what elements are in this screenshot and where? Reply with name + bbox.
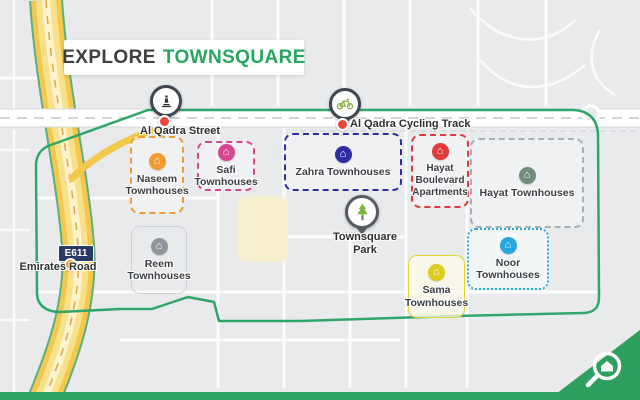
region-sama-townhouses: ⌂ Sama Townhouses <box>408 255 465 318</box>
home-icon: ⌂ <box>218 144 235 161</box>
region-label: Noor Townhouses <box>469 257 547 282</box>
region-hayat-boulevard-apartments: ⌂ Hayat Boulevard Apartments <box>411 134 469 208</box>
home-icon: ⌂ <box>335 146 352 163</box>
region-label: Safi Townhouses <box>194 164 257 189</box>
landmark-building <box>238 196 288 262</box>
region-noor-townhouses: ⌂ Noor Townhouses <box>467 228 549 290</box>
region-naseem-townhouses: ⌂ Naseem Townhouses <box>130 136 184 214</box>
region-zahra-townhouses: ⌂ Zahra Townhouses <box>284 133 402 191</box>
bayut-logo <box>548 330 640 400</box>
home-icon: ⌂ <box>428 264 445 281</box>
home-icon: ⌂ <box>151 238 168 255</box>
emirates-road-label: Emirates Road <box>8 261 108 273</box>
bottom-green-strip <box>0 392 640 400</box>
region-hayat-townhouses: ⌂ Hayat Townhouses <box>470 138 584 228</box>
cycling-poi-marker <box>336 118 349 131</box>
map-title-card: EXPLORE TOWNSQUARE <box>64 40 304 75</box>
region-label: Hayat Boulevard Apartments <box>412 163 468 198</box>
region-label: Naseem Townhouses <box>125 173 188 198</box>
e611-route-badge: E611 <box>58 245 94 262</box>
townsquare-park-label: Townsquare Park <box>325 231 405 257</box>
tree-icon <box>345 195 379 229</box>
region-reem-townhouses: ⌂ Reem Townhouses <box>131 226 187 294</box>
al-qadra-street-label: Al Qadra Street <box>140 125 220 137</box>
region-label: Hayat Townhouses <box>480 187 575 199</box>
cycling-track-label: Al Qadra Cycling Track <box>350 118 470 130</box>
title-explore: EXPLORE <box>62 47 156 69</box>
region-label: Reem Townhouses <box>127 258 190 283</box>
home-icon: ⌂ <box>519 167 536 184</box>
title-townsquare: TOWNSQUARE <box>163 47 306 69</box>
region-label: Zahra Townhouses <box>296 166 391 178</box>
statue-icon <box>150 85 182 117</box>
home-icon: ⌂ <box>500 237 517 254</box>
townsquare-park-pin <box>345 195 379 235</box>
region-safi-townhouses: ⌂ Safi Townhouses <box>197 141 255 191</box>
region-label: Sama Townhouses <box>405 284 468 309</box>
home-icon: ⌂ <box>432 143 449 160</box>
bicycle-icon <box>329 88 361 120</box>
home-icon: ⌂ <box>149 153 166 170</box>
townsquare-map: ⌂ Naseem Townhouses ⌂ Safi Townhouses ⌂ … <box>0 0 640 400</box>
